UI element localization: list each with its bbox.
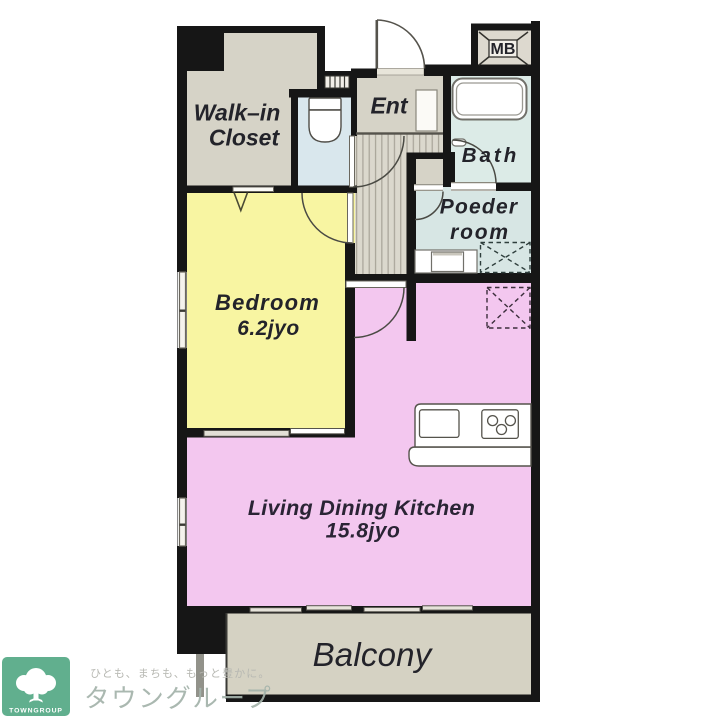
svg-text:MB: MB <box>491 41 516 58</box>
svg-text:タウングループ: タウングループ <box>84 685 272 713</box>
svg-text:Bath: Bath <box>462 144 520 167</box>
svg-text:TOWNGROUP: TOWNGROUP <box>9 708 63 715</box>
svg-text:Walk–in: Walk–in <box>194 99 281 125</box>
svg-text:Poeder: Poeder <box>440 196 519 219</box>
svg-text:Balcony: Balcony <box>313 636 434 673</box>
svg-text:Bedroom: Bedroom <box>215 290 320 315</box>
svg-text:Living Dining Kitchen: Living Dining Kitchen <box>248 496 475 520</box>
svg-text:15.8jyo: 15.8jyo <box>326 520 401 543</box>
svg-text:room: room <box>450 221 510 244</box>
svg-text:6.2jyo: 6.2jyo <box>237 317 300 340</box>
svg-text:ひとも、まちも、もっと豊かに。: ひとも、まちも、もっと豊かに。 <box>90 667 271 680</box>
svg-text:Ent: Ent <box>370 93 408 119</box>
svg-text:Closet: Closet <box>209 124 281 150</box>
